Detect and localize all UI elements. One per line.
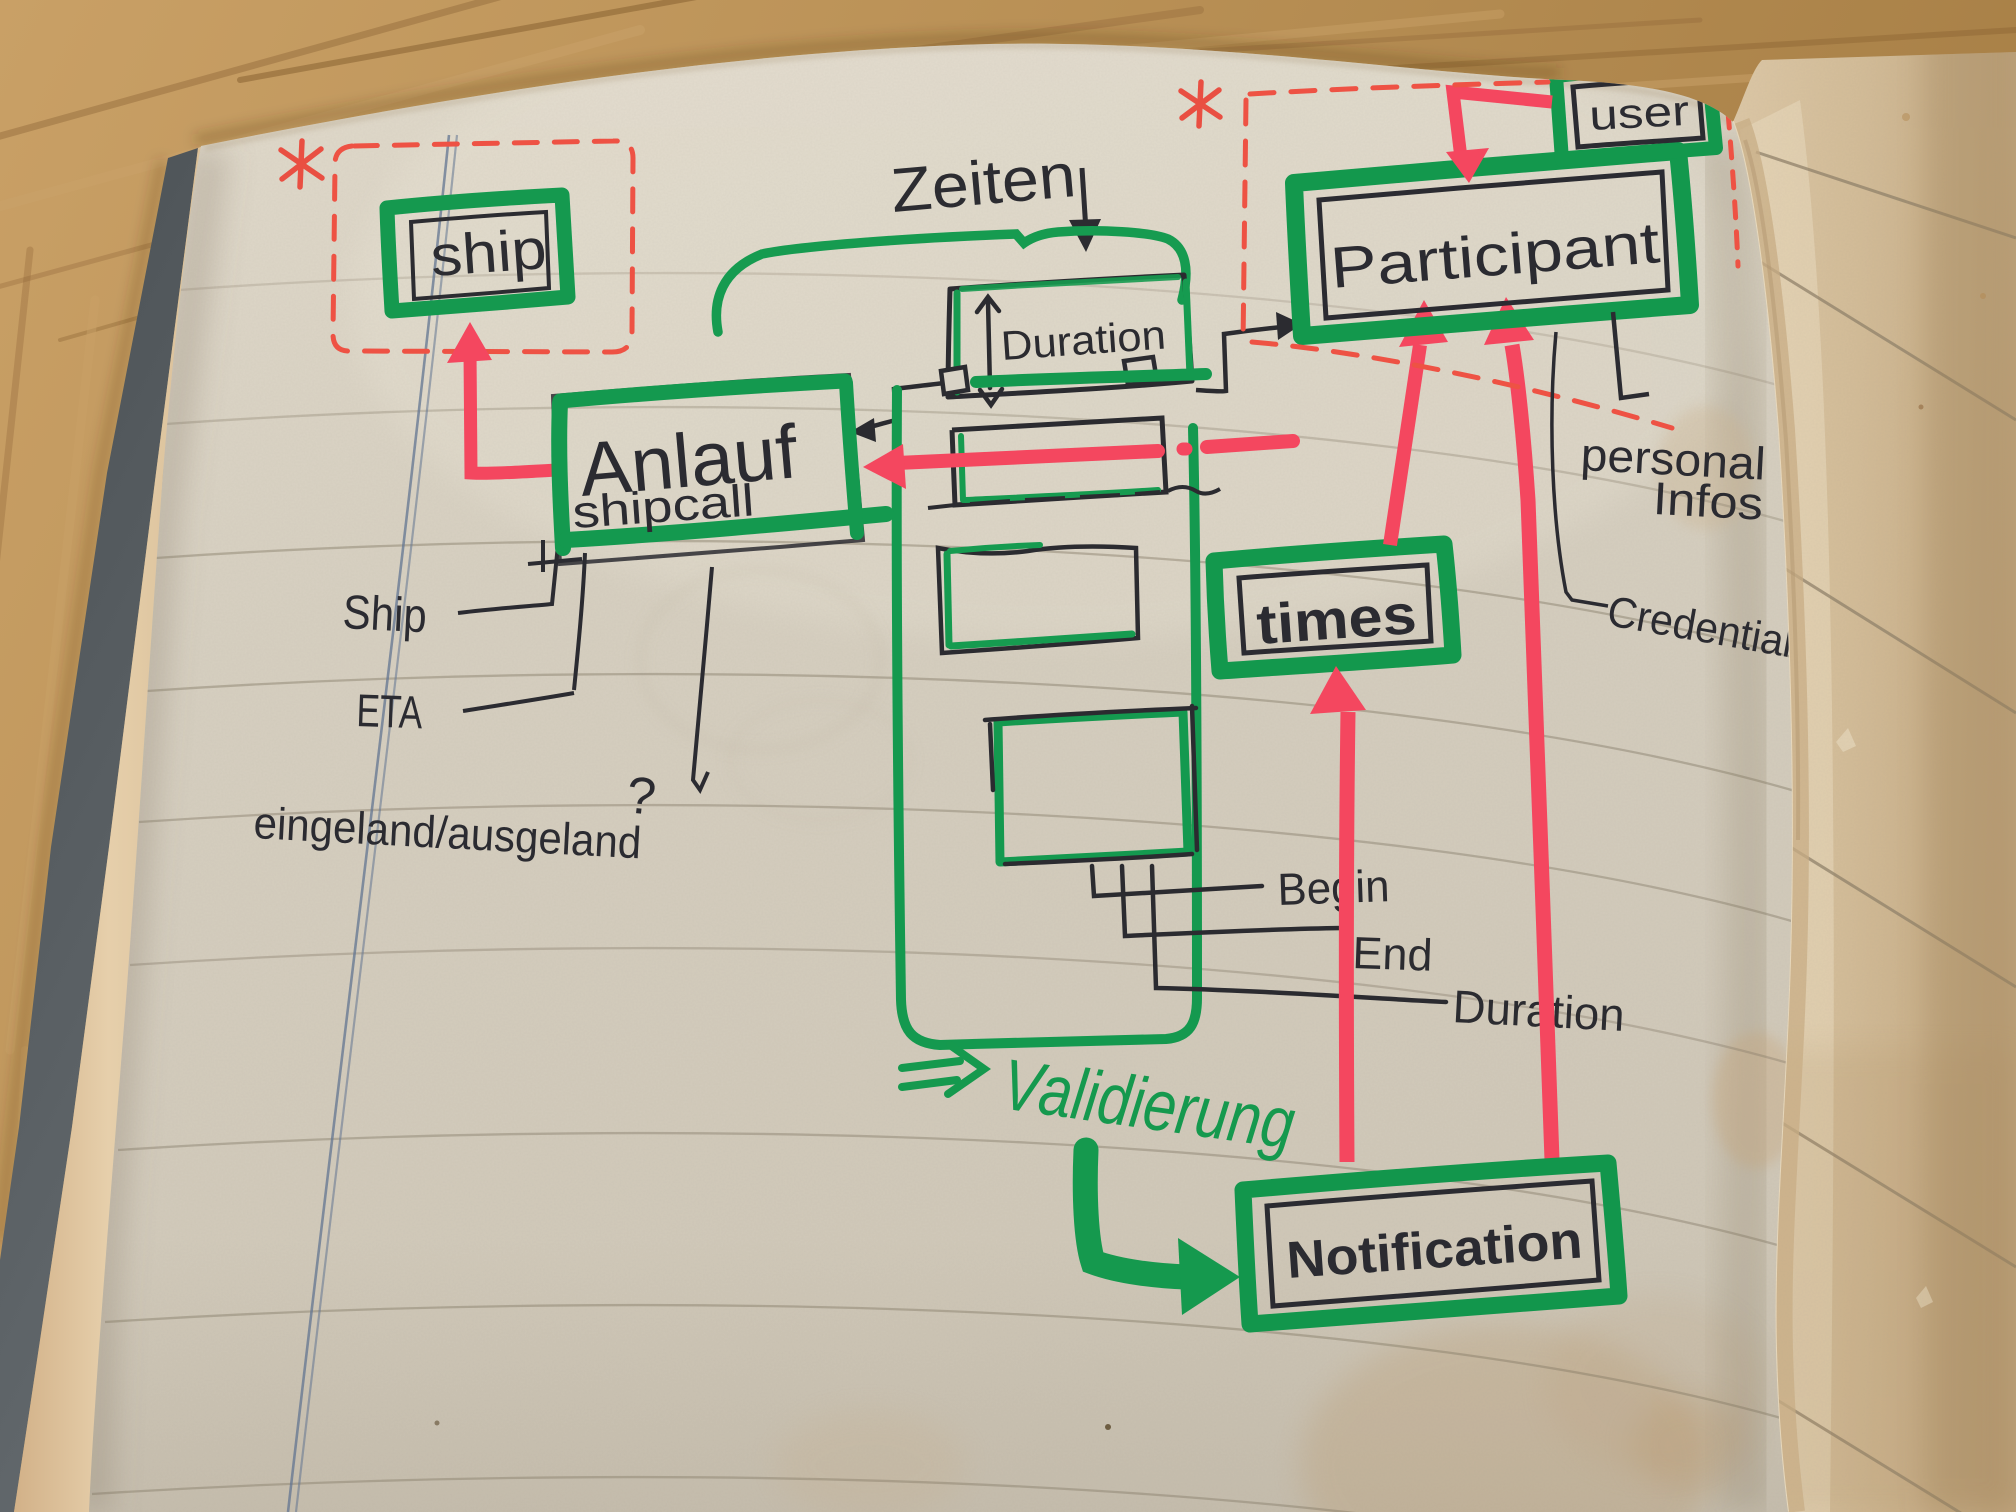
svg-text:ETA: ETA — [356, 684, 424, 738]
svg-text:Infos: Infos — [1652, 472, 1765, 530]
svg-text:times: times — [1254, 582, 1418, 656]
svg-text:End: End — [1352, 927, 1434, 981]
svg-text:Begin: Begin — [1277, 860, 1391, 915]
svg-text:Ship: Ship — [341, 586, 428, 643]
svg-text:?: ? — [624, 766, 659, 827]
svg-text:ship: ship — [428, 217, 548, 289]
svg-text:user: user — [1588, 87, 1690, 139]
